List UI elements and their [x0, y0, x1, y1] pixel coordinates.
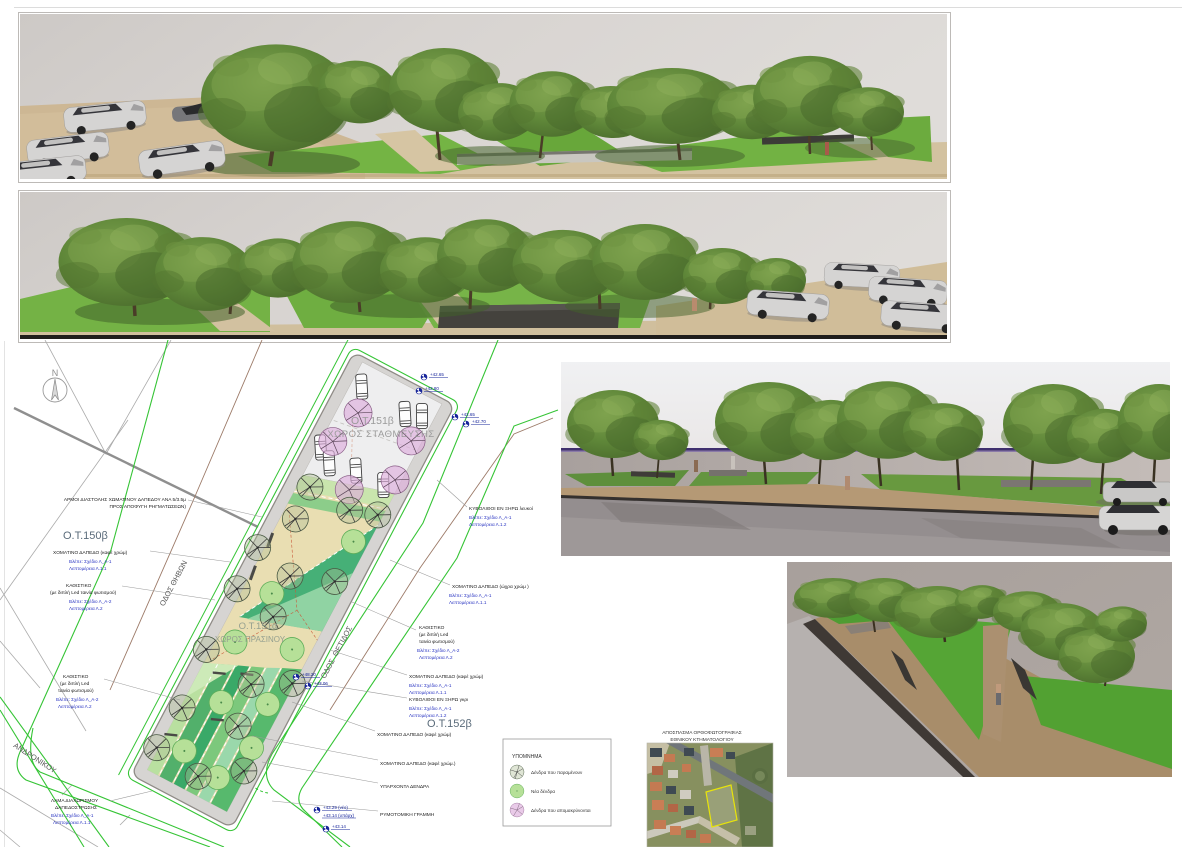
svg-text:ΠΡΟΣ ΑΠΟΦΥΓΗ ΡΗΓΜΑΤΩΣΕΩΝ): ΠΡΟΣ ΑΠΟΦΥΓΗ ΡΗΓΜΑΤΩΣΕΩΝ) [109, 504, 186, 510]
svg-text:ΕΘΝΙΚΟΥ ΚΤΗΜΑΤΟΛΟΓΙΟΥ: ΕΘΝΙΚΟΥ ΚΤΗΜΑΤΟΛΟΓΙΟΥ [670, 737, 734, 743]
svg-text:Λεπτομέρεια Λ.1.2: Λεπτομέρεια Λ.1.2 [409, 712, 447, 718]
svg-text:ΛΑΜΑ ΔΙΑΧΩΡΙΣΜΟΥ: ΛΑΜΑ ΔΙΑΧΩΡΙΣΜΟΥ [51, 798, 99, 804]
svg-text:ΡΥΜΟΤΟΜΙΚΗ ΓΡΑΜΜΗ: ΡΥΜΟΤΟΜΙΚΗ ΓΡΑΜΜΗ [380, 812, 435, 818]
svg-text:ΧΟΜΑΤΙΝΟ ΔΑΠΕΔΟ (ώχρα χρώμ ): ΧΟΜΑΤΙΝΟ ΔΑΠΕΔΟ (ώχρα χρώμ ) [452, 583, 529, 590]
svg-text:+42.70: +42.70 [472, 419, 486, 424]
svg-text:Λεπτομέρεια Λ.2: Λεπτομέρεια Λ.2 [69, 605, 103, 611]
svg-text:(με διπλή Led: (με διπλή Led [419, 631, 449, 638]
svg-text:Λεπτομέρεια Λ.2: Λεπτομέρεια Λ.2 [58, 703, 92, 709]
svg-text:Λεπτομέρεια Λ.2: Λεπτομέρεια Λ.2 [419, 654, 453, 660]
svg-text:+48.20: +48.20 [302, 672, 316, 677]
svg-text:(με διπλή Led: (με διπλή Led [60, 680, 90, 687]
svg-text:ΚΑΘΙΣΤΙΚΟ: ΚΑΘΙΣΤΙΚΟ [63, 674, 89, 680]
svg-text:Λεπτομέρεια Λ.1.1: Λεπτομέρεια Λ.1.1 [409, 689, 447, 695]
svg-text:Βλέπε: Σχέδιο Λ_Α-2: Βλέπε: Σχέδιο Λ_Α-2 [56, 696, 99, 702]
svg-text:(με διπλή Led ταινία φωτισμού): (με διπλή Led ταινία φωτισμού) [50, 589, 117, 596]
svg-text:+42.65: +42.65 [461, 412, 475, 417]
svg-text:Λεπτομέρεια Λ.1.1: Λεπτομέρεια Λ.1.1 [53, 819, 91, 825]
svg-text:ΚΑΘΙΣΤΙΚΟ: ΚΑΘΙΣΤΙΚΟ [419, 625, 445, 631]
svg-text:Βλέπε: Σχέδιο Λ_Α-2: Βλέπε: Σχέδιο Λ_Α-2 [69, 598, 112, 604]
svg-text:ΧΩΡΟΣ ΣΤΑΘΜΕΥΣΗΣ: ΧΩΡΟΣ ΣΤΑΘΜΕΥΣΗΣ [327, 429, 434, 440]
svg-text:Βλέπε: Σχέδιο Λ_Α-1: Βλέπε: Σχέδιο Λ_Α-1 [449, 592, 492, 598]
svg-text:Δένδρα που παραμένουν: Δένδρα που παραμένουν [531, 769, 583, 775]
svg-text:ΧΩΡΟΣ ΠΡΑΣΙΝΟΥ: ΧΩΡΟΣ ΠΡΑΣΙΝΟΥ [215, 635, 286, 644]
svg-text:Λεπτομέρεια Λ.1.2: Λεπτομέρεια Λ.1.2 [469, 521, 507, 527]
svg-text:Βλέπε: Σχέδιο Λ_Α-2: Βλέπε: Σχέδιο Λ_Α-2 [417, 647, 460, 653]
svg-text:Λεπτομέρεια Λ.1.1: Λεπτομέρεια Λ.1.1 [69, 565, 107, 571]
svg-text:ΚΥΒΟΛΙΘΟΙ ΕΝ ΞΗΡΩ γκρι: ΚΥΒΟΛΙΘΟΙ ΕΝ ΞΗΡΩ γκρι [409, 697, 468, 703]
svg-text:ταινία φωτισμού): ταινία φωτισμού) [58, 687, 94, 694]
svg-text:Νέα δένδρα: Νέα δένδρα [531, 788, 555, 794]
svg-text:ταινία φωτισμού): ταινία φωτισμού) [419, 638, 455, 645]
svg-text:ΧΟΜΑΤΙΝΟ ΔΑΠΕΔΟ (καφέ χρώμ.): ΧΟΜΑΤΙΝΟ ΔΑΠΕΔΟ (καφέ χρώμ.) [380, 760, 456, 767]
svg-text:ΔΑΠΕΔΟΣΤΡΩΣΗΣ: ΔΑΠΕΔΟΣΤΡΩΣΗΣ [55, 805, 97, 811]
svg-text:Βλέπε: Σχέδιο Λ_Α-1: Βλέπε: Σχέδιο Λ_Α-1 [409, 705, 452, 711]
svg-text:Βλέπε: Σχέδιο Λ_Α-1: Βλέπε: Σχέδιο Λ_Α-1 [69, 558, 112, 564]
svg-text:N: N [52, 368, 59, 378]
svg-text:+42.65: +42.65 [430, 372, 444, 377]
svg-text:ΥΠΟΜΝΗΜΑ: ΥΠΟΜΝΗΜΑ [512, 754, 542, 760]
svg-text:ΑΡΜΟΙ ΔΙΑΣΤΟΛΗΣ ΧΩΜΑΤΙΝΟΥ ΔΑΠΕ: ΑΡΜΟΙ ΔΙΑΣΤΟΛΗΣ ΧΩΜΑΤΙΝΟΥ ΔΑΠΕΔΟΥ ΑΝΑ 5/… [64, 497, 186, 503]
svg-text:ΧΟΜΑΤΙΝΟ ΔΑΠΕΔΟ (καφέ χρώμ): ΧΟΜΑΤΙΝΟ ΔΑΠΕΔΟ (καφέ χρώμ) [409, 673, 484, 680]
svg-text:+43.29 (νέο): +43.29 (νέο) [323, 804, 348, 810]
svg-text:+43.06: +43.06 [314, 681, 328, 686]
svg-text:Βλέπε: Σχέδιο Λ_Α-1: Βλέπε: Σχέδιο Λ_Α-1 [469, 514, 512, 520]
svg-text:ΧΟΜΑΤΙΝΟ ΔΑΠΕΔΟ (καφέ χρώμ): ΧΟΜΑΤΙΝΟ ΔΑΠΕΔΟ (καφέ χρώμ) [377, 731, 452, 738]
svg-text:ΟΔΟΣ ΘΗΒΩΝ: ΟΔΟΣ ΘΗΒΩΝ [158, 559, 190, 608]
svg-text:Ο.Τ.152β: Ο.Τ.152β [427, 718, 472, 730]
svg-text:ΑΝΔΡΟΝΙΚΟΥ: ΑΝΔΡΟΝΙΚΟΥ [12, 741, 58, 775]
svg-text:Ο.Τ.151β: Ο.Τ.151β [351, 415, 394, 427]
svg-text:+43.14 (υπάρχ): +43.14 (υπάρχ) [323, 812, 355, 818]
svg-text:ΧΟΜΑΤΙΝΟ ΔΑΠΕΔΟ (καφέ χρώμ): ΧΟΜΑΤΙΝΟ ΔΑΠΕΔΟ (καφέ χρώμ) [53, 549, 128, 556]
svg-text:ΚΑΘΙΣΤΙΚΟ: ΚΑΘΙΣΤΙΚΟ [66, 583, 92, 589]
svg-text:Ο.Τ.151α: Ο.Τ.151α [239, 621, 278, 632]
svg-text:Βλέπε: Σχέδιο Λ_Α-1: Βλέπε: Σχέδιο Λ_Α-1 [51, 812, 94, 818]
svg-text:+42.80: +42.80 [425, 386, 439, 391]
svg-text:ΑΠΟΣΠΑΣΜΑ ΟΡΘΟΦΩΤΟΓΡΑΦΙΑΣ: ΑΠΟΣΠΑΣΜΑ ΟΡΘΟΦΩΤΟΓΡΑΦΙΑΣ [662, 730, 742, 736]
svg-text:ΚΥΒΟΛΙΘΟΙ ΕΝ ΞΗΡΩ λευκοί: ΚΥΒΟΛΙΘΟΙ ΕΝ ΞΗΡΩ λευκοί [469, 506, 534, 512]
svg-text:+43.14: +43.14 [332, 824, 346, 829]
svg-text:Δένδρα που απομακρύνονται: Δένδρα που απομακρύνονται [531, 807, 591, 813]
svg-text:Βλέπε: Σχέδιο Λ_Α-1: Βλέπε: Σχέδιο Λ_Α-1 [409, 682, 452, 688]
svg-text:Λεπτομέρεια Λ.1.1: Λεπτομέρεια Λ.1.1 [449, 599, 487, 605]
svg-text:Ο.Τ.150β: Ο.Τ.150β [63, 530, 108, 542]
svg-text:ΥΠΑΡΧΟΝΤΑ ΔΕΝΔΡΑ: ΥΠΑΡΧΟΝΤΑ ΔΕΝΔΡΑ [380, 784, 430, 790]
